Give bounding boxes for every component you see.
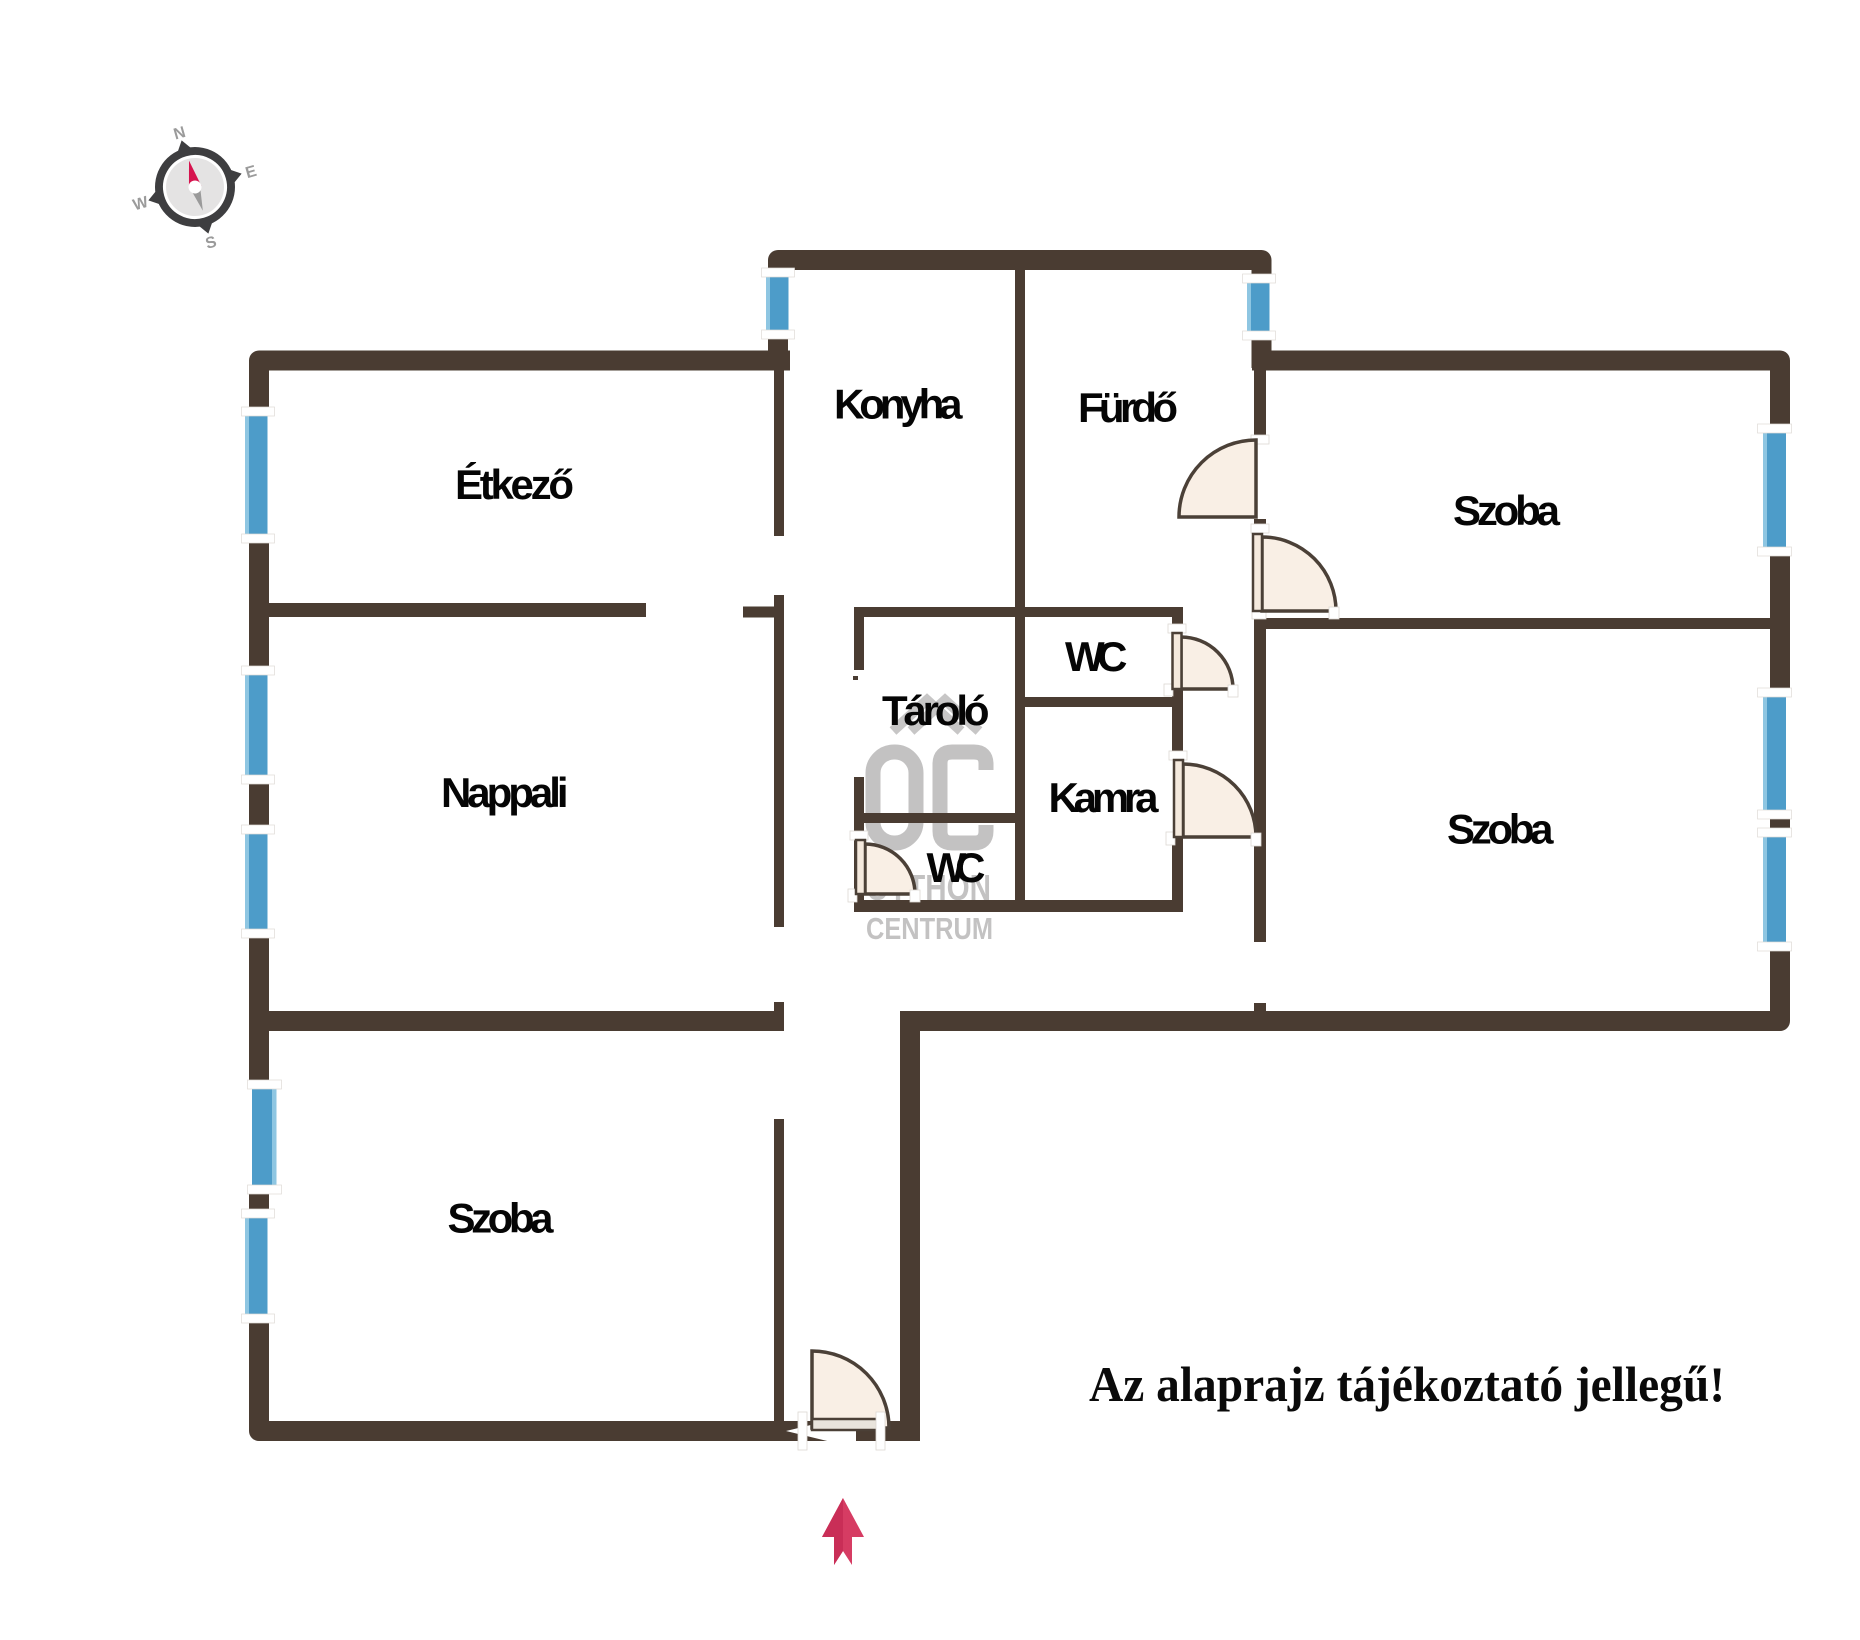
svg-text:WC: WC: [1065, 633, 1128, 680]
svg-text:CENTRUM: CENTRUM: [866, 911, 993, 946]
svg-text:Nappali: Nappali: [441, 769, 569, 816]
svg-text:Szoba: Szoba: [448, 1195, 555, 1242]
svg-text:Szoba: Szoba: [1453, 487, 1561, 534]
svg-text:Szoba: Szoba: [1447, 806, 1554, 853]
svg-text:Konyha: Konyha: [834, 381, 963, 428]
svg-text:W: W: [131, 194, 151, 215]
svg-text:Tároló: Tároló: [882, 687, 990, 734]
svg-text:S: S: [204, 234, 219, 253]
svg-text:Fürdő: Fürdő: [1078, 384, 1178, 431]
svg-text:WC: WC: [927, 844, 986, 891]
svg-text:Kamra: Kamra: [1049, 774, 1160, 821]
svg-text:Az alaprajz tájékoztató jelleg: Az alaprajz tájékoztató jellegű!: [1089, 1356, 1725, 1412]
svg-text:Étkező: Étkező: [455, 461, 574, 508]
svg-text:N: N: [172, 124, 188, 144]
svg-text:E: E: [244, 163, 259, 182]
